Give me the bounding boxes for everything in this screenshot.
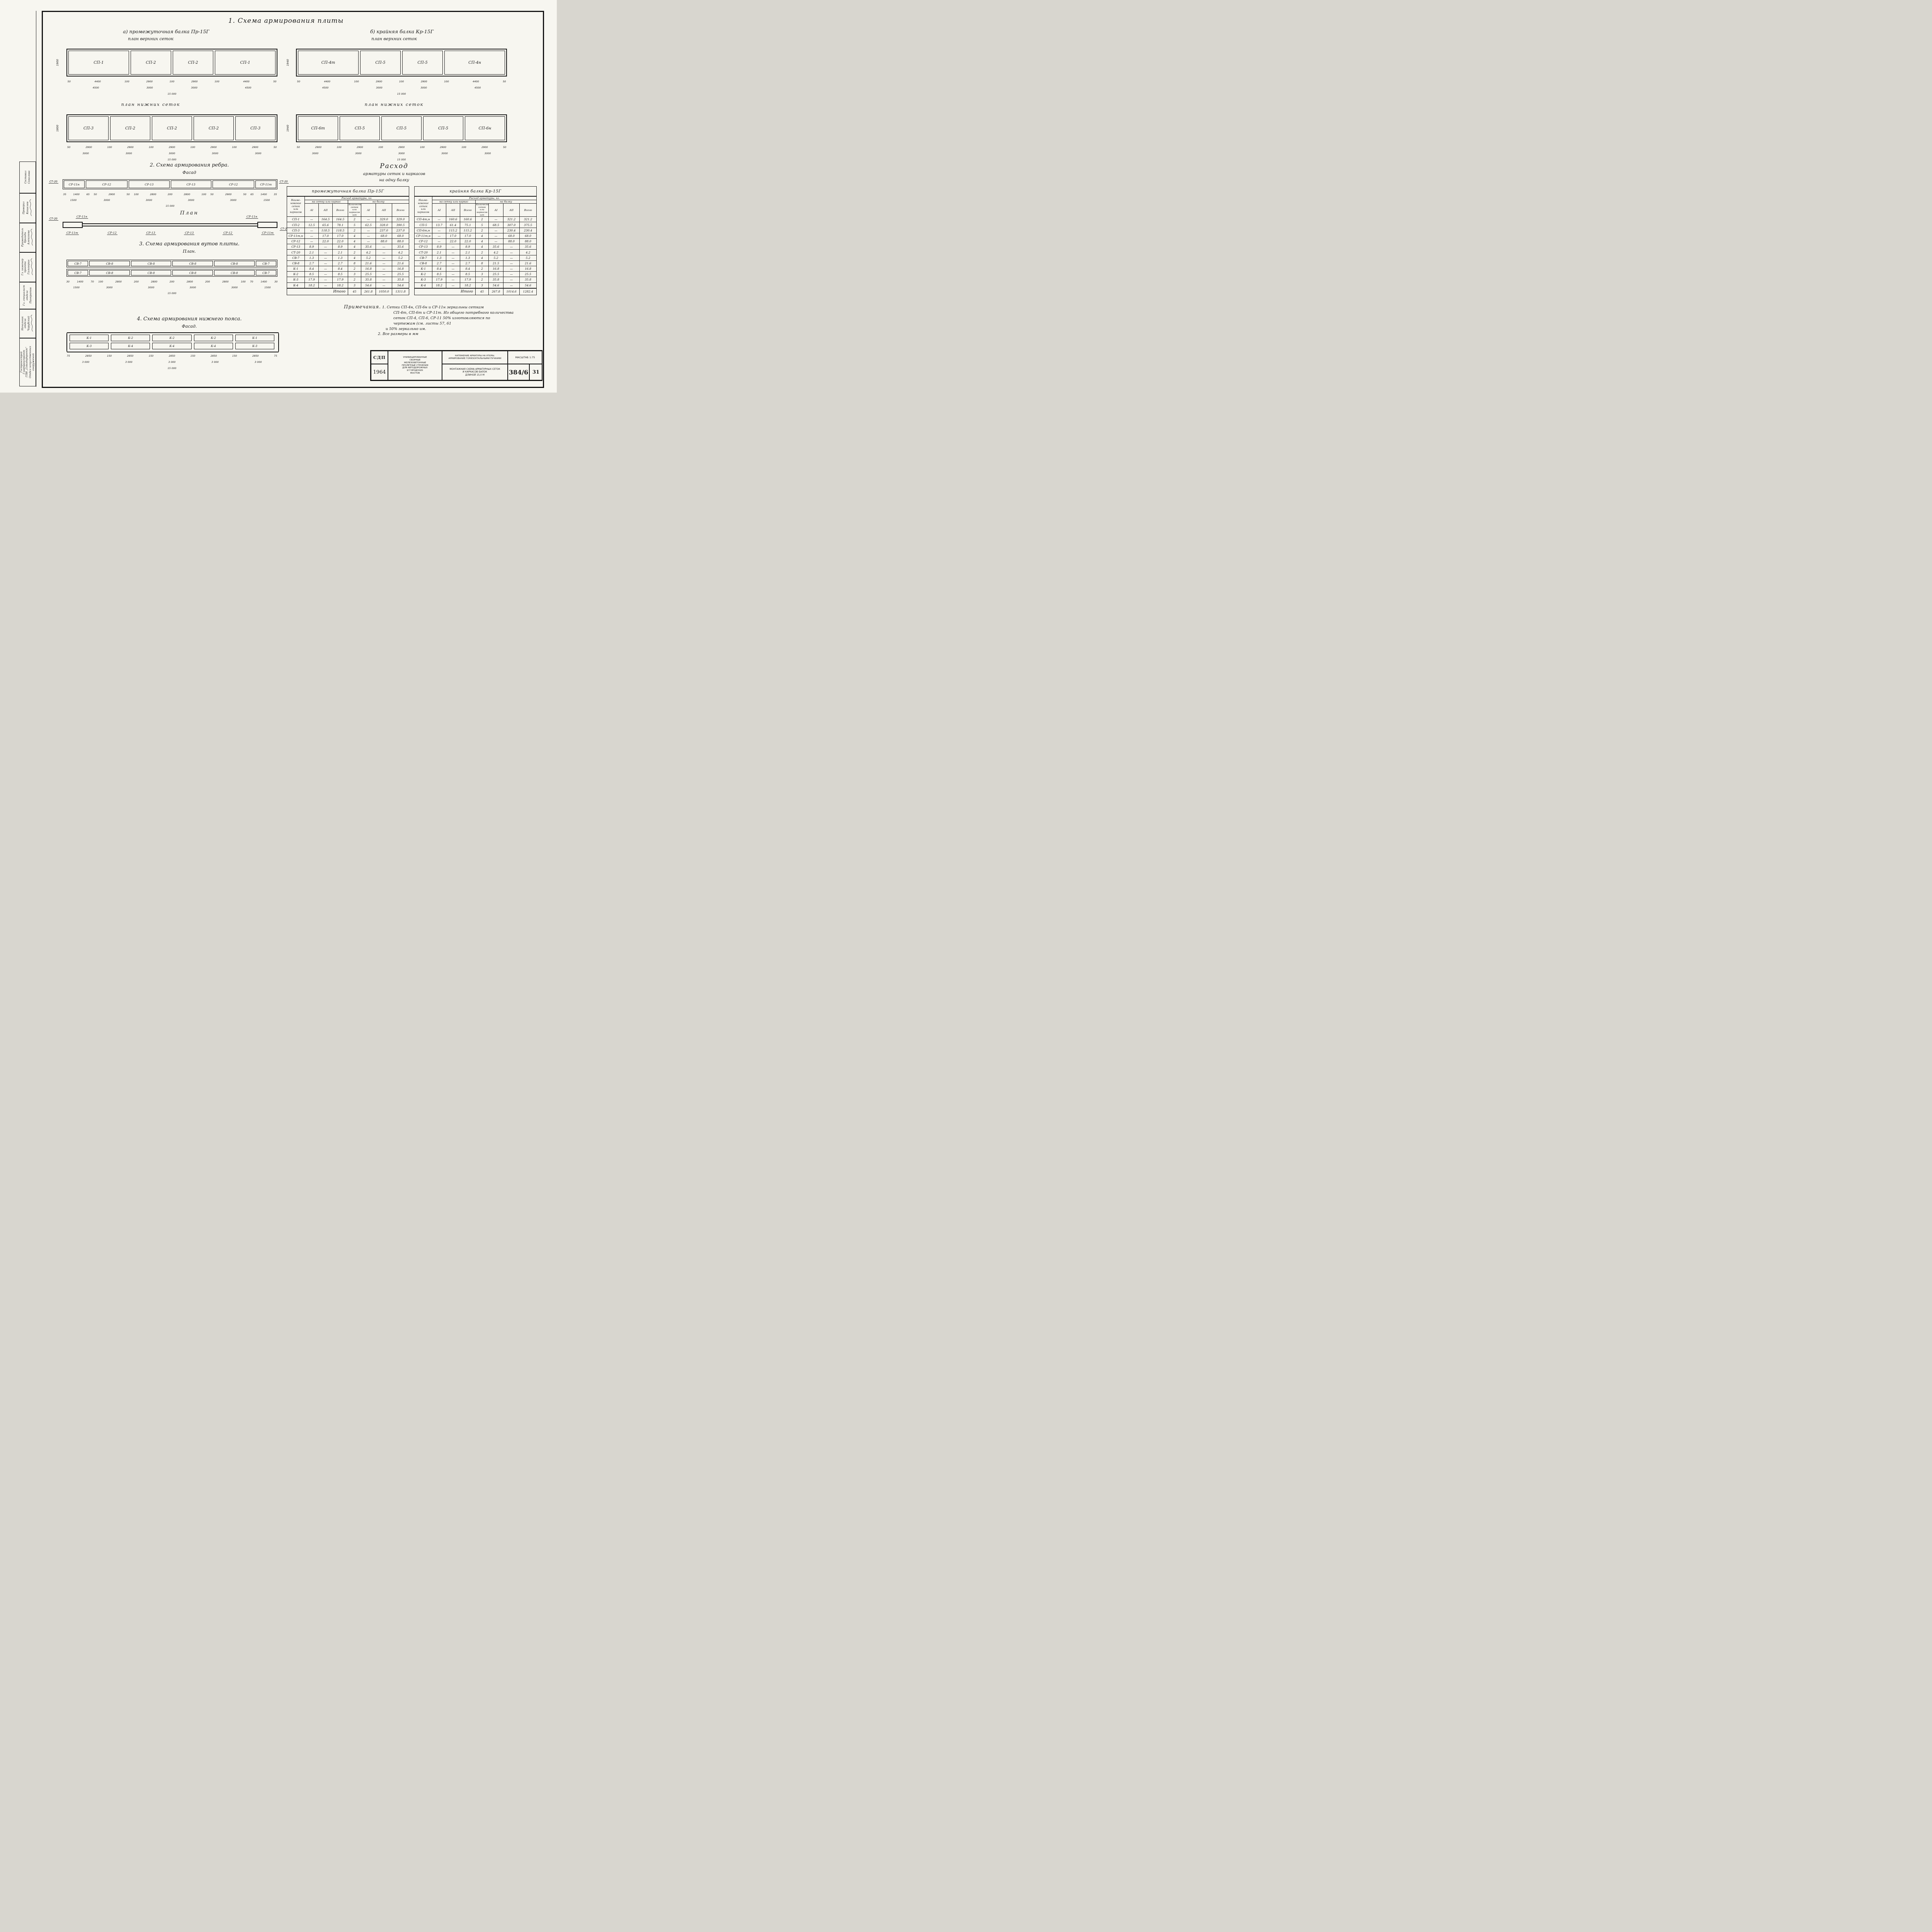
plan-bar-middle [83,223,257,226]
dim-value: 100 [239,280,248,283]
table-cell: 54.6 [520,282,537,288]
panel-cell: СР-11н [64,180,85,188]
dim-value: 100 [229,146,240,149]
sheet-title: МОНТАЖНАЯ СХЕМА АРМАТУРНЫХ СЕТОК И КАРКА… [442,364,508,380]
table-cell: 68.0 [376,233,392,238]
table-cell: — [489,239,503,244]
table-cell: — [361,228,376,233]
group-b-subtitle: б) крайняя балка Кр-15Г [328,29,475,34]
col-header-total: Всего [520,204,537,217]
panel-cell-label: СР-13 [145,183,154,186]
table-cell: 8.5 [333,272,348,277]
table-cell: СП-5 [415,222,432,228]
dim-value: 3000 [107,152,151,155]
panel-cell: СВ-7 [256,270,276,276]
dim-value: 4500 [294,86,357,89]
table-cell: — [305,233,319,238]
document-number: 384/6 [508,364,529,380]
dim-value: 2800 [175,193,200,196]
table-cell: 4 [348,255,361,260]
table-cell: СВ-7 [287,255,305,260]
table-cell: 2.1 [432,250,446,255]
dim-value: 2900 [115,146,146,149]
panel-cell: СП-5 [402,51,443,75]
table-cell: 3 [348,272,361,277]
table-cell: 2 [476,277,489,282]
table-cell: — [446,244,460,250]
panel-cell: К-3 [235,343,274,349]
dim-value: 100 [132,193,141,196]
rib-facade-strip: СР-11нСР-12СР-13СР-13СР-12СР-11т [63,179,277,189]
table-row: СР-12—22.022.04—88.088.0 [287,239,409,244]
section-2-plan-label: План [116,210,263,216]
table-cell: 21.6 [520,260,537,266]
table-cell: 16.8 [520,266,537,271]
table-cell: 4 [348,239,361,244]
table-row: К-18.4—8.4216.8—16.8 [415,266,537,271]
dim-value: 2900 [178,80,211,83]
panel-cell: СП-2 [131,51,171,75]
table-cell: 54.6 [489,282,503,288]
panel-cell: СП-5 [423,116,463,140]
table-cell: — [376,272,392,277]
dim-value: 100 [104,146,115,149]
table-cell: 8 [476,260,489,266]
notes-label: Примечания. [344,304,381,310]
plan-bottom-labels: СР-11тСР-12СР-13СР-13СР-12СР-11т [66,231,274,235]
table-cell: 2 [476,266,489,271]
group-b-plan-lower-label: план нижних сеток [328,102,460,107]
panel-cell-label: К-2 [211,336,216,340]
dim-value: 2900 [362,80,396,83]
total-a1: 261.8 [361,288,376,295]
haunch-row-2: СВ-7СВ-8СВ-8СВ-8СВ-8СВ-7 [66,269,277,277]
dim-value: 4400 [74,80,121,83]
table-cell: 5.2 [392,255,409,260]
panel-cell: К-1 [70,335,109,341]
total-label: Итого [415,288,476,295]
panel-cell-label: СР-13 [187,183,196,186]
table-cell: 18.2 [432,282,446,288]
table-cell: 375.5 [520,222,537,228]
note-line: сеток СП-4, СП-6, СР-11 50% изготовляютс… [344,316,537,321]
dim-value: 3000 [212,199,254,202]
dim-value: 50 [208,193,216,196]
dim-value: 3000 [150,152,194,155]
table-cell: К-1 [287,266,305,271]
table-cell: — [446,272,460,277]
panel-cell-label: СП-2 [146,61,156,65]
note-line: чертежам (см. листы 57, 61 [344,321,537,327]
dim-value: 100 [375,146,386,149]
col-header-a1: АI [489,204,503,217]
dim-value: 75 [271,354,280,357]
panel-cell: СВ-8 [89,261,130,266]
table-cell: — [503,255,520,260]
table-cell: 3 [348,282,361,288]
table-cell: 2.7 [305,260,319,266]
section-3-title: 3. Схема армирования вутов плиты. [100,241,278,247]
sheet-number: 31 [529,364,543,380]
table-cell: 4 [348,233,361,238]
table-cell: 8.5 [432,272,446,277]
table-cell: 75.1 [460,222,476,228]
table-cell: — [503,244,520,250]
table-cell: — [305,217,319,222]
table-cell: — [319,282,333,288]
table-cell: 8.9 [305,244,319,250]
dim-value: 150 [104,354,114,357]
table-row: К-418.2—18.2354.6—54.6 [415,282,537,288]
panel-cell-label: СП-3 [250,126,260,131]
dim-value: 70 [248,280,255,283]
table-cell: — [446,266,460,271]
dim-value: 2900 [303,146,334,149]
table-row: СР-11т,н—17.017.04—68.068.0 [415,233,537,238]
table-cell: 4.2 [489,250,503,255]
dim-value: 2900 [73,146,104,149]
table-intermediate-beam: промежуточная балка Пр-15Г Наиме- новани… [287,186,409,295]
panel-cell-label: СП-3 [83,126,94,131]
table-cell: — [503,260,520,266]
table-cell: 237.0 [376,228,392,233]
table-cell: 2.7 [333,260,348,266]
table-row: СП-212.565.678.1562.5328.0390.5 [287,222,409,228]
group-b-plan-upper-label: план верхних сеток [328,36,460,41]
col-header-per-item: на сетку или каркас [305,200,348,204]
dim-chain: 3014007010028002002800200280020028001007… [64,279,280,283]
table-cell: 35.8 [520,277,537,282]
panel-cell-label: СР-11т [260,183,272,186]
table-cell: СВ-8 [287,260,305,266]
table-row: СВ-71.3—1.345.2—5.2 [287,255,409,260]
panel-cell-label: СР-12 [102,183,111,186]
dim-value: 1500 [254,199,279,202]
year-label: 1964 [371,364,388,380]
panel-cell-label: СП-1 [240,61,250,65]
table-row: СП-1—164.5164.52—329.0329.0 [287,217,409,222]
table-cell: 16.8 [361,266,376,271]
col-header-expense: Расход арматуры, кг. [432,196,537,200]
dim-chain: 30003000300030003000 [294,151,509,155]
table-cell: 1.3 [432,255,446,260]
dim-value: 3000 [236,152,280,155]
table-cell: СР-12 [415,239,432,244]
panel-cell: СВ-7 [256,261,276,266]
col-header-name: Наиме- нование сеток или каркасов [287,196,305,217]
dim-value: 4500 [446,86,509,89]
dim-value: 50 [499,80,509,83]
table-cell: 18.2 [305,282,319,288]
sheet-edge-line [36,11,36,387]
table-cell: 4 [476,239,489,244]
table-cell: 164.5 [319,217,333,222]
table-cell: 4 [476,244,489,250]
group-a-plan-upper-label: план верхних сеток [77,36,224,41]
subject-title: НАТЯЖЕНИЕ АРМАТУРЫ НА УПОРЫ. АРМИРОВАНИЕ… [442,351,508,364]
panel-cell: СВ-8 [131,261,172,266]
panel-cell-label: СП-4н [468,61,481,65]
dim-value: 15 000 [64,92,280,95]
net-panel-a-lower: СП-3СП-2СП-2СП-2СП-3 [66,114,277,142]
table-cell: 13.7 [432,222,446,228]
table-cell: — [376,266,392,271]
dim-value: 3 000 [236,361,280,364]
table-title: крайняя балка Кр-15Г [415,187,537,197]
dim-value: 1500 [64,286,88,289]
dim-value: 3 000 [64,361,107,364]
group-a-plan-lower-label: план нижних сеток [77,102,224,107]
table-row: СР-11т,н—17.017.04—68.068.0 [287,233,409,238]
table-cell: — [432,239,446,244]
table-cell: 78.1 [333,222,348,228]
table-cell: СР-11т,н [287,233,305,238]
dim-value: 2900 [386,146,417,149]
panel-cell-label: К-1 [87,336,92,340]
table-cell: 88.0 [392,239,409,244]
dim-value: 15 000 [64,367,280,370]
table-cell: 35.8 [392,277,409,282]
table-cell: — [319,272,333,277]
stamp-role: Гл. специалист отдела [23,282,28,308]
dim-value: 50 [241,193,248,196]
dim-chain: 3514006550290050100280020028001005029005… [61,192,279,196]
table-cell: 115.2 [446,228,460,233]
total-a2: 1014.6 [503,288,520,295]
blueprint-sheet: 1. Схема армирования плиты а) промежуточ… [0,0,557,393]
dim-chain: 4500300030004500 [294,85,509,89]
panel-cell-label: К-3 [252,344,257,348]
table-cell: 3 [476,282,489,288]
table-cell: 22.0 [333,239,348,244]
stamp-cell: Гл. специалист отделаПанкратов [19,282,36,309]
dim-value: 3 000 [194,361,237,364]
dim-chain: 15 000 [64,157,280,161]
st20-label: СТ-20 [279,180,289,184]
table-cell: — [489,233,503,238]
dim-value: 150 [230,354,240,357]
dim-value: 50 [294,80,304,83]
table-row: К-418.2—18.2354.6—54.6 [287,282,409,288]
note-line: и 50% зеркально им. [344,327,537,332]
dim-value: 50 [500,146,509,149]
panel-cell-label: СП-2 [125,126,135,131]
table-cell: 21.6 [392,260,409,266]
table-cell: 2 [476,250,489,255]
col-header-a1: АI [305,204,319,217]
note-line: СП-4т, СП-6т и СР-11т. Из общего потребн… [344,310,537,316]
panel-cell: СП-6н [465,116,505,140]
dim-value: 3000 [337,152,380,155]
table-cell: 160.6 [460,217,476,222]
table-cell: — [489,217,503,222]
table-cell: 17.9 [305,277,319,282]
dim-value: 100 [417,146,428,149]
plan-net-label: СР-11т [66,231,79,235]
dim-value: 100 [96,280,105,283]
dim-value: 15 000 [64,292,280,295]
chord-row-1: К-1К-2К-2К-2К-1 [70,335,274,341]
panel-cell: СП-4т [298,51,359,75]
panel-cell: СВ-7 [68,261,88,266]
table-cell: 8.4 [432,266,446,271]
table-cell: 4.2 [361,250,376,255]
table-row: К-18.4—8.4216.8—16.8 [287,266,409,271]
table-cell: СТ-20 [287,250,305,255]
table-cell: 88.0 [376,239,392,244]
dim-value: 100 [211,80,223,83]
note-text: 1. Сетки СП-4н, СП-6н и СР-11н зеркальны… [382,305,484,310]
table-cell: 237.0 [392,228,409,233]
table-cell: 329.0 [392,217,409,222]
dim-value: 100 [199,193,208,196]
table-cell: СР-12 [287,239,305,244]
table-cell: 68.0 [520,233,537,238]
dim-value: 35 [61,193,68,196]
table-cell: 8.5 [460,272,476,277]
group-a-subtitle: а) промежуточная балка Пр-15Г [89,29,243,34]
stamp-cell-content: Гл. специалист отделаПанкратов [20,282,35,308]
panel-cell: СП-3 [235,116,276,140]
table-cell: — [319,250,333,255]
dim-chain: 150030003000300030001500 [64,285,280,289]
panel-cell: СР-12 [86,180,128,188]
panel-cell-label: СП-2 [209,126,219,131]
panel-cell-label: СВ-7 [262,271,270,275]
stamp-cell: Начальник отделаЧарубский [19,309,36,338]
table-row: СП-4т,н—160.6160.62—321.2321.2 [415,217,537,222]
table-cell: — [361,217,376,222]
table-row: К-28.5—8.5325.5—25.5 [287,272,409,277]
table-cell: 18.2 [333,282,348,288]
table-cell: 17.9 [460,277,476,282]
panel-cell-label: К-2 [169,336,174,340]
table-cell: 230.4 [520,228,537,233]
stamp-column: СоставилСоколова ПроверилКошелев Руковод… [19,162,36,386]
dim-value: 35 [272,193,279,196]
table-cell: 8.4 [305,266,319,271]
dim-value: 65 [248,193,256,196]
table-cell: 2.1 [333,250,348,255]
col-header-a2: АII [446,204,460,217]
panel-cell: СВ-7 [68,270,88,276]
panel-cell: СП-4н [444,51,505,75]
dim-value: 3000 [172,286,214,289]
stamp-cell: Гострансстрой Главтранспроект ГПИ „Союзд… [19,338,36,386]
table-cell: 61.4 [446,222,460,228]
dim-value: 2850 [114,354,146,357]
section-2-title: 2. Схема армирования ребра. [108,162,270,168]
dim-value: 2900 [99,193,124,196]
dim-value: 70 [88,280,96,283]
panel-cell: СП-2 [152,116,192,140]
col-header-total: Всего [460,204,476,217]
table-cell: 2 [476,217,489,222]
table-cell: 8.5 [305,272,319,277]
table-cell: 12.5 [305,222,319,228]
total-a2: 1050.0 [376,288,392,295]
panel-cell-label: СВ-8 [231,262,238,265]
panel-cell: СВ-8 [172,261,213,266]
dim-value: 100 [146,146,156,149]
panel-cell-label: СП-5 [418,61,428,65]
dim-value: 150 [188,354,198,357]
table-cell: 5 [348,222,361,228]
table-row: СВ-82.7—2.7821.6—21.6 [287,260,409,266]
panel-cell: К-1 [235,335,274,341]
dim-value: 2900 [133,80,166,83]
table-cell: 35.8 [489,277,503,282]
dim-chain: 150030003000300030001500 [61,197,279,202]
dim-chain: 15 000 [294,157,509,161]
plan-net-label: СР-12 [223,231,233,235]
dim-value: 2800 [212,280,239,283]
table-cell: 17.0 [333,233,348,238]
dim-chain: 50440010029001002900100440050 [64,79,280,83]
table-cell: 25.5 [520,272,537,277]
height-label: 1940 [286,59,289,66]
table-cell: 22.0 [446,239,460,244]
dim-value: 3000 [88,286,130,289]
panel-cell: СП-2 [173,51,213,75]
panel-cell: СП-2 [110,116,150,140]
table-cell: — [376,250,392,255]
dim-chain: 15 000 [64,91,280,95]
table-cell: 22.0 [319,239,333,244]
dim-value: 2900 [345,146,376,149]
dim-value: 2800 [141,193,166,196]
dim-value: 3000 [294,152,337,155]
table-cell: 17.9 [432,277,446,282]
dim-value: 4500 [64,86,128,89]
panel-cell-label: СВ-7 [262,262,270,265]
table-cell: 17.0 [446,233,460,238]
section-3-subtitle: План. [100,249,278,254]
table-cell: — [319,277,333,282]
table-row: К-317.9—17.9235.8—35.8 [287,277,409,282]
panel-cell-label: СВ-8 [189,271,197,275]
haunch-row-1: СВ-7СВ-8СВ-8СВ-8СВ-8СВ-7 [66,260,277,267]
dim-value: 3000 [214,286,255,289]
dim-value: 2850 [240,354,271,357]
dim-value: 2900 [198,146,229,149]
table-cell: — [432,217,446,222]
table-cell: 230.4 [503,228,520,233]
dim-value: 100 [187,146,198,149]
stamp-cell-content: Гострансстрой Главтранспроект ГПИ „Союзд… [20,338,35,386]
stamp-cell-content: Гл. инженер проектаГальперин [20,253,35,281]
panel-cell: СП-3 [68,116,109,140]
consumption-heading: Расход [328,162,460,170]
net-panel-b-lower: СП-6тСП-5СП-5СП-5СП-6н [296,114,507,142]
dim-value: 4400 [452,80,499,83]
total-row: Итого 45 261.8 1050.0 1311.8 [287,288,409,295]
dim-value: 2800 [105,280,132,283]
table-cell: 390.5 [392,222,409,228]
dim-value: 3000 [466,152,509,155]
dim-value: 2900 [407,80,441,83]
page-title: 1. Схема армирования плиты [178,17,394,25]
table-row: К-28.5—8.5325.5—25.5 [415,272,537,277]
dim-value: 3000 [128,199,170,202]
table-cell: 5.2 [520,255,537,260]
table-cell: СВ-7 [415,255,432,260]
dim-value: 3 000 [107,361,151,364]
panel-cell: К-2 [194,335,233,341]
dim-value: 30 [272,280,280,283]
table-cell: — [432,228,446,233]
table-cell: 35.6 [392,244,409,250]
